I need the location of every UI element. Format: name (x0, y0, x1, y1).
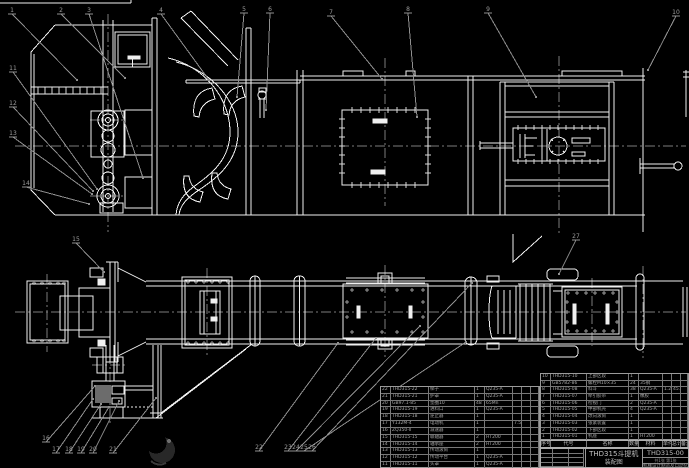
bom-row: 4THD315-04改向滚筒1 (541, 414, 688, 421)
bom-cell (672, 407, 681, 413)
bom-cell (681, 374, 688, 380)
bom-header-cell: 材料 (639, 441, 663, 447)
bom-cell (513, 414, 522, 420)
callout-label: 14 (22, 180, 30, 187)
bom-cell: 传动平台 (429, 455, 475, 461)
bom-cell: 料斗 (587, 387, 629, 393)
bom-cell (639, 428, 663, 434)
callout-label: 16 (42, 435, 50, 442)
bom-cell: 2 (475, 442, 485, 448)
callout-label: 3 (87, 7, 91, 14)
bom-row: 16ZQ350-Ⅱ减速器1 (381, 428, 539, 435)
callout-label: 1 (10, 7, 14, 14)
bom-cell: 24 (629, 381, 639, 387)
bom-cell (513, 387, 522, 393)
bom-cell (485, 421, 513, 427)
callout-label: 23 (284, 444, 292, 451)
bom-cell (663, 421, 672, 427)
bom-cell: 20 (381, 401, 391, 407)
bom-cell (663, 407, 672, 413)
bom-cell (681, 414, 688, 420)
callout-label: 17 (52, 446, 60, 453)
callout-label: 2 (59, 7, 63, 14)
parts-list-right: 10THD315-10上部区段19GB5782-86螺栓M10×352435钢8… (540, 373, 689, 440)
bom-row: 9GB5782-86螺栓M10×352435钢 (541, 381, 688, 388)
title-block: THD315斗提机 装配图 THD315-00 共1张 第1张 机械设计制造及自… (540, 448, 689, 468)
bom-cell (522, 401, 531, 407)
bom-cell: 2 (475, 435, 485, 441)
bom-cell (672, 381, 681, 387)
bom-cell: 1 (475, 428, 485, 434)
bom-cell (672, 414, 681, 420)
bom-row: 8THD315-08料斗38Q235-A1.245.6 (541, 387, 688, 394)
bom-cell: 检视门 (587, 401, 629, 407)
bom-row: 5THD315-05中部机壳4Q235-A (541, 407, 688, 414)
bom-cell: 2 (541, 428, 551, 434)
bom-cell: THD315-11 (391, 462, 429, 468)
bom-cell: 轴承座 (429, 442, 475, 448)
bom-cell: 上部区段 (587, 374, 629, 380)
callout-label: 18 (65, 446, 73, 453)
bom-cell: 15 (381, 435, 391, 441)
bom-cell: 1 (629, 414, 639, 420)
bom-cell: 4 (541, 414, 551, 420)
bom-cell: Q235-A (639, 401, 663, 407)
side-view (31, 11, 682, 232)
callout-label: 9 (486, 6, 490, 13)
bom-cell (681, 428, 688, 434)
bom-cell: 电动机 (429, 421, 475, 427)
bom-cell: 13 (381, 448, 391, 454)
bom-cell (485, 448, 513, 454)
drawing-number: THD315-00 (643, 449, 688, 458)
bom-cell: 橡胶 (639, 394, 663, 400)
callout-label: 26 (308, 444, 316, 451)
bom-cell: 1 (475, 455, 485, 461)
bom-cell (681, 401, 688, 407)
bom-cell: 1 (475, 387, 485, 393)
bom-cell: 7.5kW (513, 421, 522, 427)
bom-cell (531, 387, 539, 393)
callout-label: 12 (9, 100, 17, 107)
generated-ticks (32, 87, 619, 403)
bom-cell (672, 421, 681, 427)
bom-cell (513, 401, 522, 407)
bom-cell (663, 394, 672, 400)
bom-cell: GB97.1-85 (391, 401, 429, 407)
bom-cell (522, 455, 531, 461)
bom-cell: 1 (629, 374, 639, 380)
bom-cell (513, 435, 522, 441)
bom-cell (531, 448, 539, 454)
bom-cell (513, 407, 522, 413)
bom-cell (513, 462, 522, 468)
bom-cell: 螺栓M10×35 (587, 381, 629, 387)
bom-cell: 48 (475, 401, 485, 407)
bom-cell: 17 (381, 421, 391, 427)
bom-cell (681, 387, 688, 393)
bom-cell: 2 (629, 401, 639, 407)
bom-cell: Q235-A (639, 387, 663, 393)
callout-label: 8 (406, 6, 410, 13)
bom-cell: 1 (629, 394, 639, 400)
bom-cell: THD315-08 (551, 387, 587, 393)
bom-cell: 牵引胶带 (587, 394, 629, 400)
bom-cell (513, 428, 522, 434)
bom-cell: THD315-15 (391, 435, 429, 441)
bom-row: 22THD315-22梯子1Q235-A (381, 387, 539, 394)
bom-cell (531, 407, 539, 413)
drawing-title: THD315斗提机 装配图 (586, 449, 643, 467)
bom-row: 13THD315-13传动滚筒1 (381, 448, 539, 455)
callout-label: 6 (268, 6, 272, 13)
bom-cell: 1 (475, 462, 485, 468)
bom-cell (531, 401, 539, 407)
bom-cell: Q235-A (485, 394, 513, 400)
bom-cell: 9 (541, 381, 551, 387)
bom-cell: 21 (381, 394, 391, 400)
bom-cell (522, 462, 531, 468)
bom-cell: 梯子 (429, 387, 475, 393)
bom-cell: 1 (475, 414, 485, 420)
bom-cell: 4 (629, 407, 639, 413)
bom-cell: THD315-13 (391, 448, 429, 454)
bom-cell: THD315-07 (551, 394, 587, 400)
callout-label: 21 (109, 446, 117, 453)
bom-cell (531, 421, 539, 427)
bom-header-cell: 名称 (587, 441, 629, 447)
bom-cell: 11 (381, 462, 391, 468)
bom-cell: 传动滚筒 (429, 448, 475, 454)
bom-row: 12THD315-12传动平台1Q235-A (381, 455, 539, 462)
callout-label: 15 (72, 236, 80, 243)
bom-cell (672, 428, 681, 434)
bom-row: 11THD315-11头罩1Q235-A (381, 462, 539, 468)
bom-cell: 1 (475, 394, 485, 400)
bom-cell: 38 (629, 387, 639, 393)
cad-sheet: 1234567891011121314151617181920212223242… (0, 0, 689, 468)
bom-cell: 35钢 (639, 381, 663, 387)
bom-cell (522, 414, 531, 420)
bom-cell: 18 (381, 414, 391, 420)
bom-cell: THD315-02 (551, 428, 587, 434)
callout-label: 22 (255, 444, 263, 451)
bom-cell (663, 414, 672, 420)
callout-label: 24 (292, 444, 300, 451)
bom-cell: Q235-A (485, 455, 513, 461)
bom-cell (639, 414, 663, 420)
bom-cell: THD315-14 (391, 442, 429, 448)
bom-header-cell: 数量 (629, 441, 639, 447)
bom-cell: 改向滚筒 (587, 414, 629, 420)
bom-cell (639, 374, 663, 380)
bom-row: 17Y132M-4电动机17.5kW (381, 421, 539, 428)
bom-row: 2THD315-02下部区段1 (541, 428, 688, 435)
bom-cell: 7 (541, 394, 551, 400)
bom-cell: HT200 (485, 435, 513, 441)
bom-cell (522, 394, 531, 400)
parts-list-left: 22THD315-22梯子1Q235-A21THD315-21护罩1Q235-A… (380, 386, 540, 468)
bom-cell (681, 394, 688, 400)
bom-cell: THD315-22 (391, 387, 429, 393)
bom-row: 14THD315-14轴承座2HT200 (381, 442, 539, 449)
watermark-logo (146, 433, 176, 465)
callout-label: 13 (9, 130, 17, 137)
bom-cell: 张紧装置 (587, 421, 629, 427)
bom-header-cell: 总计 (672, 441, 681, 447)
bom-cell: Q235-A (485, 462, 513, 468)
bom-cell: 1 (475, 448, 485, 454)
bom-cell (522, 442, 531, 448)
title-block-right: THD315-00 共1张 第1张 机械设计制造及自动化 (643, 449, 688, 467)
bom-cell (531, 462, 539, 468)
bom-row: 18THD315-18逆止器1 (381, 414, 539, 421)
bom-cell (663, 428, 672, 434)
bom-cell: 14 (381, 442, 391, 448)
bom-row: 7THD315-07牵引胶带1橡胶 (541, 394, 688, 401)
bom-cell: 8 (541, 387, 551, 393)
bom-cell (681, 407, 688, 413)
drawing-title-line1: THD315斗提机 (586, 450, 642, 459)
bom-cell (522, 421, 531, 427)
bom-cell: 5 (541, 407, 551, 413)
bom-cell (522, 448, 531, 454)
bom-cell: 中部机壳 (587, 407, 629, 413)
bom-cell (522, 407, 531, 413)
callout-label: 5 (242, 6, 246, 13)
callout-label: 19 (77, 446, 85, 453)
bom-header-cell: 备注 (681, 441, 688, 447)
bom-cell: 19 (381, 407, 391, 413)
bom-cell: 逆止器 (429, 414, 475, 420)
title-block-signature-grid (541, 449, 586, 467)
bom-row: 3THD315-03张紧装置1 (541, 421, 688, 428)
bom-cell (531, 428, 539, 434)
callout-label: 27 (572, 233, 580, 240)
bom-row: 21THD315-21护罩1Q235-A (381, 394, 539, 401)
bom-cell: 45.6 (672, 387, 681, 393)
bom-header-cell: 代号 (551, 441, 587, 447)
drawing-title-line2: 装配图 (586, 459, 642, 467)
bom-row: 19THD315-19进料口1Q235-A (381, 407, 539, 414)
bom-cell: THD315-06 (551, 401, 587, 407)
bom-cell: 3 (541, 421, 551, 427)
org-name: 机械设计制造及自动化 (643, 464, 688, 468)
bom-cell: 1 (475, 421, 485, 427)
callout-label: 10 (672, 9, 680, 16)
bom-header-cell: 序号 (541, 441, 551, 447)
bom-cell (681, 421, 688, 427)
bom-cell (531, 435, 539, 441)
bom-cell: THD315-12 (391, 455, 429, 461)
bom-cell (513, 394, 522, 400)
bom-cell: 1.2 (663, 387, 672, 393)
callout-label: 20 (89, 446, 97, 453)
bom-cell (663, 374, 672, 380)
bom-cell (513, 448, 522, 454)
bom-row: 10THD315-10上部区段1 (541, 374, 688, 381)
bom-cell (522, 428, 531, 434)
bom-cell (531, 455, 539, 461)
bom-cell: 1 (475, 407, 485, 413)
bom-cell: 1 (629, 428, 639, 434)
bom-cell: 减速器 (429, 428, 475, 434)
bom-cell (672, 394, 681, 400)
bom-row: 6THD315-06检视门2Q235-A (541, 401, 688, 408)
bom-header-cell: 单件 (663, 441, 672, 447)
bom-cell (672, 374, 681, 380)
bom-cell (663, 381, 672, 387)
bom-cell (672, 401, 681, 407)
bom-cell (513, 455, 522, 461)
bom-cell: THD315-03 (551, 421, 587, 427)
bom-cell: 垫圈10 (429, 401, 475, 407)
callout-label: 4 (159, 7, 163, 14)
bom-cell (513, 442, 522, 448)
bom-cell (522, 387, 531, 393)
bom-cell (681, 381, 688, 387)
bom-cell: HT200 (485, 442, 513, 448)
callout-label: 11 (9, 65, 17, 72)
bom-cell: THD315-21 (391, 394, 429, 400)
bom-cell: 1 (629, 421, 639, 427)
bom-cell (485, 428, 513, 434)
bom-cell: 16 (381, 428, 391, 434)
bom-cell: Y132M-4 (391, 421, 429, 427)
bom-cell: Q235-A (485, 407, 513, 413)
bom-cell: 联轴器 (429, 435, 475, 441)
bom-row: 15THD315-15联轴器2HT200 (381, 435, 539, 442)
bom-cell: 65Mn (485, 401, 513, 407)
callout-label: 25 (300, 444, 308, 451)
bom-cell (531, 442, 539, 448)
bom-cell: 10 (541, 374, 551, 380)
bom-cell (639, 421, 663, 427)
bom-cell: 头罩 (429, 462, 475, 468)
bom-cell: Q235-A (485, 387, 513, 393)
bom-cell: THD315-19 (391, 407, 429, 413)
bom-cell (522, 435, 531, 441)
bom-cell: 6 (541, 401, 551, 407)
bom-cell: 下部区段 (587, 428, 629, 434)
bom-cell: THD315-18 (391, 414, 429, 420)
bom-cell (531, 394, 539, 400)
bom-cell: THD315-04 (551, 414, 587, 420)
bom-cell: THD315-10 (551, 374, 587, 380)
bom-cell: 进料口 (429, 407, 475, 413)
bom-cell: ZQ350-Ⅱ (391, 428, 429, 434)
bom-cell: Q235-A (639, 407, 663, 413)
bom-cell: 22 (381, 387, 391, 393)
bom-cell: THD315-05 (551, 407, 587, 413)
callout-label: 7 (329, 9, 333, 16)
bom-cell: 12 (381, 455, 391, 461)
parts-list-header: 序号代号名称数量材料单件总计备注 (540, 440, 689, 448)
bom-cell: GB5782-86 (551, 381, 587, 387)
bom-cell: 护罩 (429, 394, 475, 400)
bom-cell (531, 414, 539, 420)
bom-cell (663, 401, 672, 407)
bom-row: 20GB97.1-85垫圈104865Mn (381, 401, 539, 408)
bom-cell (485, 414, 513, 420)
